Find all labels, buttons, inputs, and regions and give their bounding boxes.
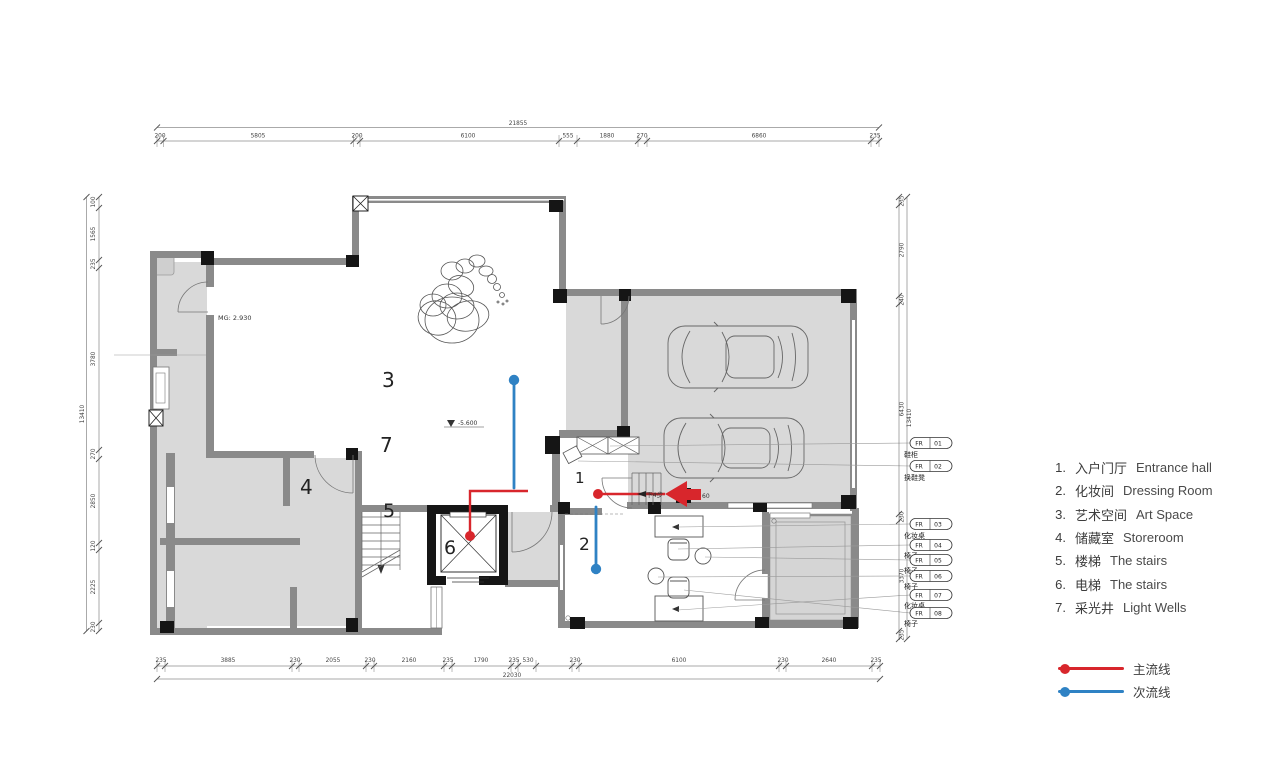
fr-code: FR — [915, 558, 923, 565]
room-number-dressing: 2 — [579, 535, 590, 555]
dim-label: 230 — [900, 511, 906, 522]
dim-label: 1880 — [600, 134, 615, 140]
room-number-entrance: 1 — [575, 469, 585, 487]
legend-en-label: Light Wells — [1123, 600, 1186, 615]
secondary-flow-label: 次流线 — [1133, 682, 1171, 701]
room-number-art-space: 3 — [382, 368, 395, 392]
dim-label: 235 — [508, 658, 519, 664]
dim-label: 235 — [442, 658, 453, 664]
fr-tag-08: FR 08 椅子 — [904, 608, 952, 629]
dim-label: 2225 — [91, 579, 97, 594]
legend-zh-label: 储藏室 — [1075, 528, 1114, 547]
level-value: -5.600 — [458, 420, 478, 427]
flow-legend: 主流线 次流线 — [1058, 657, 1171, 703]
main-flow-dot-icon — [1060, 664, 1070, 674]
steps-number: 60 — [702, 493, 710, 500]
dim-label: 235 — [91, 258, 97, 269]
legend-en-label: The stairs — [1110, 577, 1167, 592]
fr-num: 01 — [934, 441, 942, 448]
flow-legend-secondary: 次流线 — [1058, 680, 1171, 703]
dim-label: 1790 — [474, 658, 489, 664]
legend-number: 2. — [1050, 483, 1066, 498]
dim-label: 6100 — [672, 658, 687, 664]
room-number-storeroom: 4 — [300, 475, 313, 499]
legend-item-stairs: 5. 楼梯 The stairs — [1050, 549, 1260, 572]
fr-item: 鞋柜 — [904, 450, 918, 459]
fr-num: 08 — [934, 611, 942, 618]
dressing-tables — [655, 516, 703, 621]
legend-item-art-space: 3. 艺术空间 Art Space — [1050, 503, 1260, 526]
legend-number: 6. — [1050, 577, 1066, 592]
dim-label: 270 — [91, 448, 97, 459]
sculpture-blob — [414, 255, 508, 343]
dim-label: 270 — [636, 134, 647, 140]
dim-label: 235 — [900, 629, 906, 640]
room-number-elevator: 6 — [444, 537, 456, 559]
dim-label: 230 — [91, 621, 97, 632]
dim-label: 3780 — [91, 351, 97, 366]
dim-label: 230 — [289, 658, 300, 664]
dim-label: 6430 — [900, 401, 906, 416]
chairs — [648, 539, 711, 598]
fr-num: 04 — [934, 543, 942, 550]
dim-label: 240 — [900, 294, 906, 305]
main-flow-line-sample — [1058, 667, 1124, 670]
room-number-stairs: 5 — [383, 500, 395, 522]
legend-item-dressing-room: 2. 化妆间 Dressing Room — [1050, 479, 1260, 502]
fr-tag-07: FR 07 化妆桌 — [904, 590, 952, 611]
fr-num: 07 — [934, 593, 942, 600]
dim-label: 120 — [91, 540, 97, 551]
dim-label: 200 — [351, 134, 362, 140]
dim-label: 22030 — [503, 673, 522, 679]
dim-label: 5805 — [251, 134, 266, 140]
shoe-cabinet — [577, 437, 639, 454]
secondary-flow-dot-icon — [1060, 687, 1070, 697]
legend-zh-label: 楼梯 — [1075, 551, 1101, 570]
dim-label: 2640 — [822, 658, 837, 664]
dim-label: 3885 — [221, 658, 236, 664]
legend-number: 5. — [1050, 553, 1066, 568]
room-number-light-well: 7 — [380, 433, 393, 457]
dim-label: 13410 — [907, 408, 913, 427]
flow-legend-main: 主流线 — [1058, 657, 1171, 680]
fr-code: FR — [915, 574, 923, 581]
legend-zh-label: 化妆间 — [1075, 481, 1114, 500]
fr-code: FR — [915, 464, 923, 471]
dim-label: 230 — [364, 658, 375, 664]
fr-code: FR — [915, 522, 923, 529]
room-legend: 1. 入户门厅 Entrance hall 2. 化妆间 Dressing Ro… — [1050, 456, 1260, 619]
legend-item-elevator: 6. 电梯 The stairs — [1050, 572, 1260, 595]
dim-label: 230 — [569, 658, 580, 664]
dim-label: 235 — [155, 658, 166, 664]
dim-label: 200 — [154, 134, 165, 140]
dim-label: 530 — [522, 658, 533, 664]
legend-en-label: Storeroom — [1123, 530, 1184, 545]
secondary-flow-line-sample — [1058, 690, 1124, 693]
legend-item-light-wells: 7. 采光井 Light Wells — [1050, 596, 1260, 619]
legend-en-label: Art Space — [1136, 507, 1193, 522]
dim-label: 235 — [869, 134, 880, 140]
dim-label: 1565 — [91, 226, 97, 241]
legend-item-storeroom: 4. 储藏室 Storeroom — [1050, 526, 1260, 549]
dim-label: 21855 — [509, 121, 528, 127]
legend-number: 4. — [1050, 530, 1066, 545]
legend-en-label: The stairs — [1110, 553, 1167, 568]
courtyard — [566, 513, 852, 621]
dim-label: 555 — [562, 134, 573, 140]
legend-zh-label: 采光井 — [1075, 598, 1114, 617]
main-flow-label: 主流线 — [1133, 659, 1171, 678]
legend-number: 1. — [1050, 460, 1066, 475]
fr-num: 02 — [934, 464, 942, 471]
fr-tag-03: FR 03 化妆桌 — [904, 519, 952, 541]
dim-label: 6860 — [752, 134, 767, 140]
fr-item: 椅子 — [904, 619, 918, 628]
fr-num: 06 — [934, 574, 942, 581]
dim-label: 3370 — [900, 568, 906, 583]
fr-tag-06: FR 06 椅子 — [904, 571, 952, 592]
fr-tag-02: FR 02 换鞋凳 — [904, 461, 952, 483]
fr-num: 03 — [934, 522, 942, 529]
fr-code: FR — [915, 543, 923, 550]
legend-number: 7. — [1050, 600, 1066, 615]
ceiling-height-note: MG: 2.930 — [218, 314, 252, 322]
dim-label: 2160 — [402, 658, 417, 664]
legend-en-label: Dressing Room — [1123, 483, 1213, 498]
dim-label: 235 — [900, 195, 906, 206]
elevator — [427, 505, 508, 585]
dim-label: 2850 — [91, 493, 97, 508]
fr-code: FR — [915, 611, 923, 618]
dim-label: 13410 — [80, 404, 86, 423]
dim-label: 230 — [777, 658, 788, 664]
legend-item-entrance-hall: 1. 入户门厅 Entrance hall — [1050, 456, 1260, 479]
legend-number: 3. — [1050, 507, 1066, 522]
legend-en-label: Entrance hall — [1136, 460, 1212, 475]
legend-zh-label: 电梯 — [1075, 575, 1101, 594]
fr-num: 05 — [934, 558, 942, 565]
legend-zh-label: 艺术空间 — [1075, 505, 1127, 524]
dim-label: 2790 — [900, 242, 906, 257]
dim-label: 2055 — [326, 658, 341, 664]
dim-label: 6100 — [461, 134, 476, 140]
steps-label: 下4步 — [646, 491, 664, 499]
dim-label: 100 — [91, 196, 97, 207]
fr-tags: FR 01 鞋柜 FR 02 换鞋凳 FR 03 化妆桌 FR 04 椅子 — [904, 438, 952, 629]
fr-code: FR — [915, 593, 923, 600]
dim-label: 235 — [870, 658, 881, 664]
fr-tag-01: FR 01 鞋柜 — [904, 438, 952, 460]
fr-code: FR — [915, 441, 923, 448]
legend-zh-label: 入户门厅 — [1075, 458, 1127, 477]
